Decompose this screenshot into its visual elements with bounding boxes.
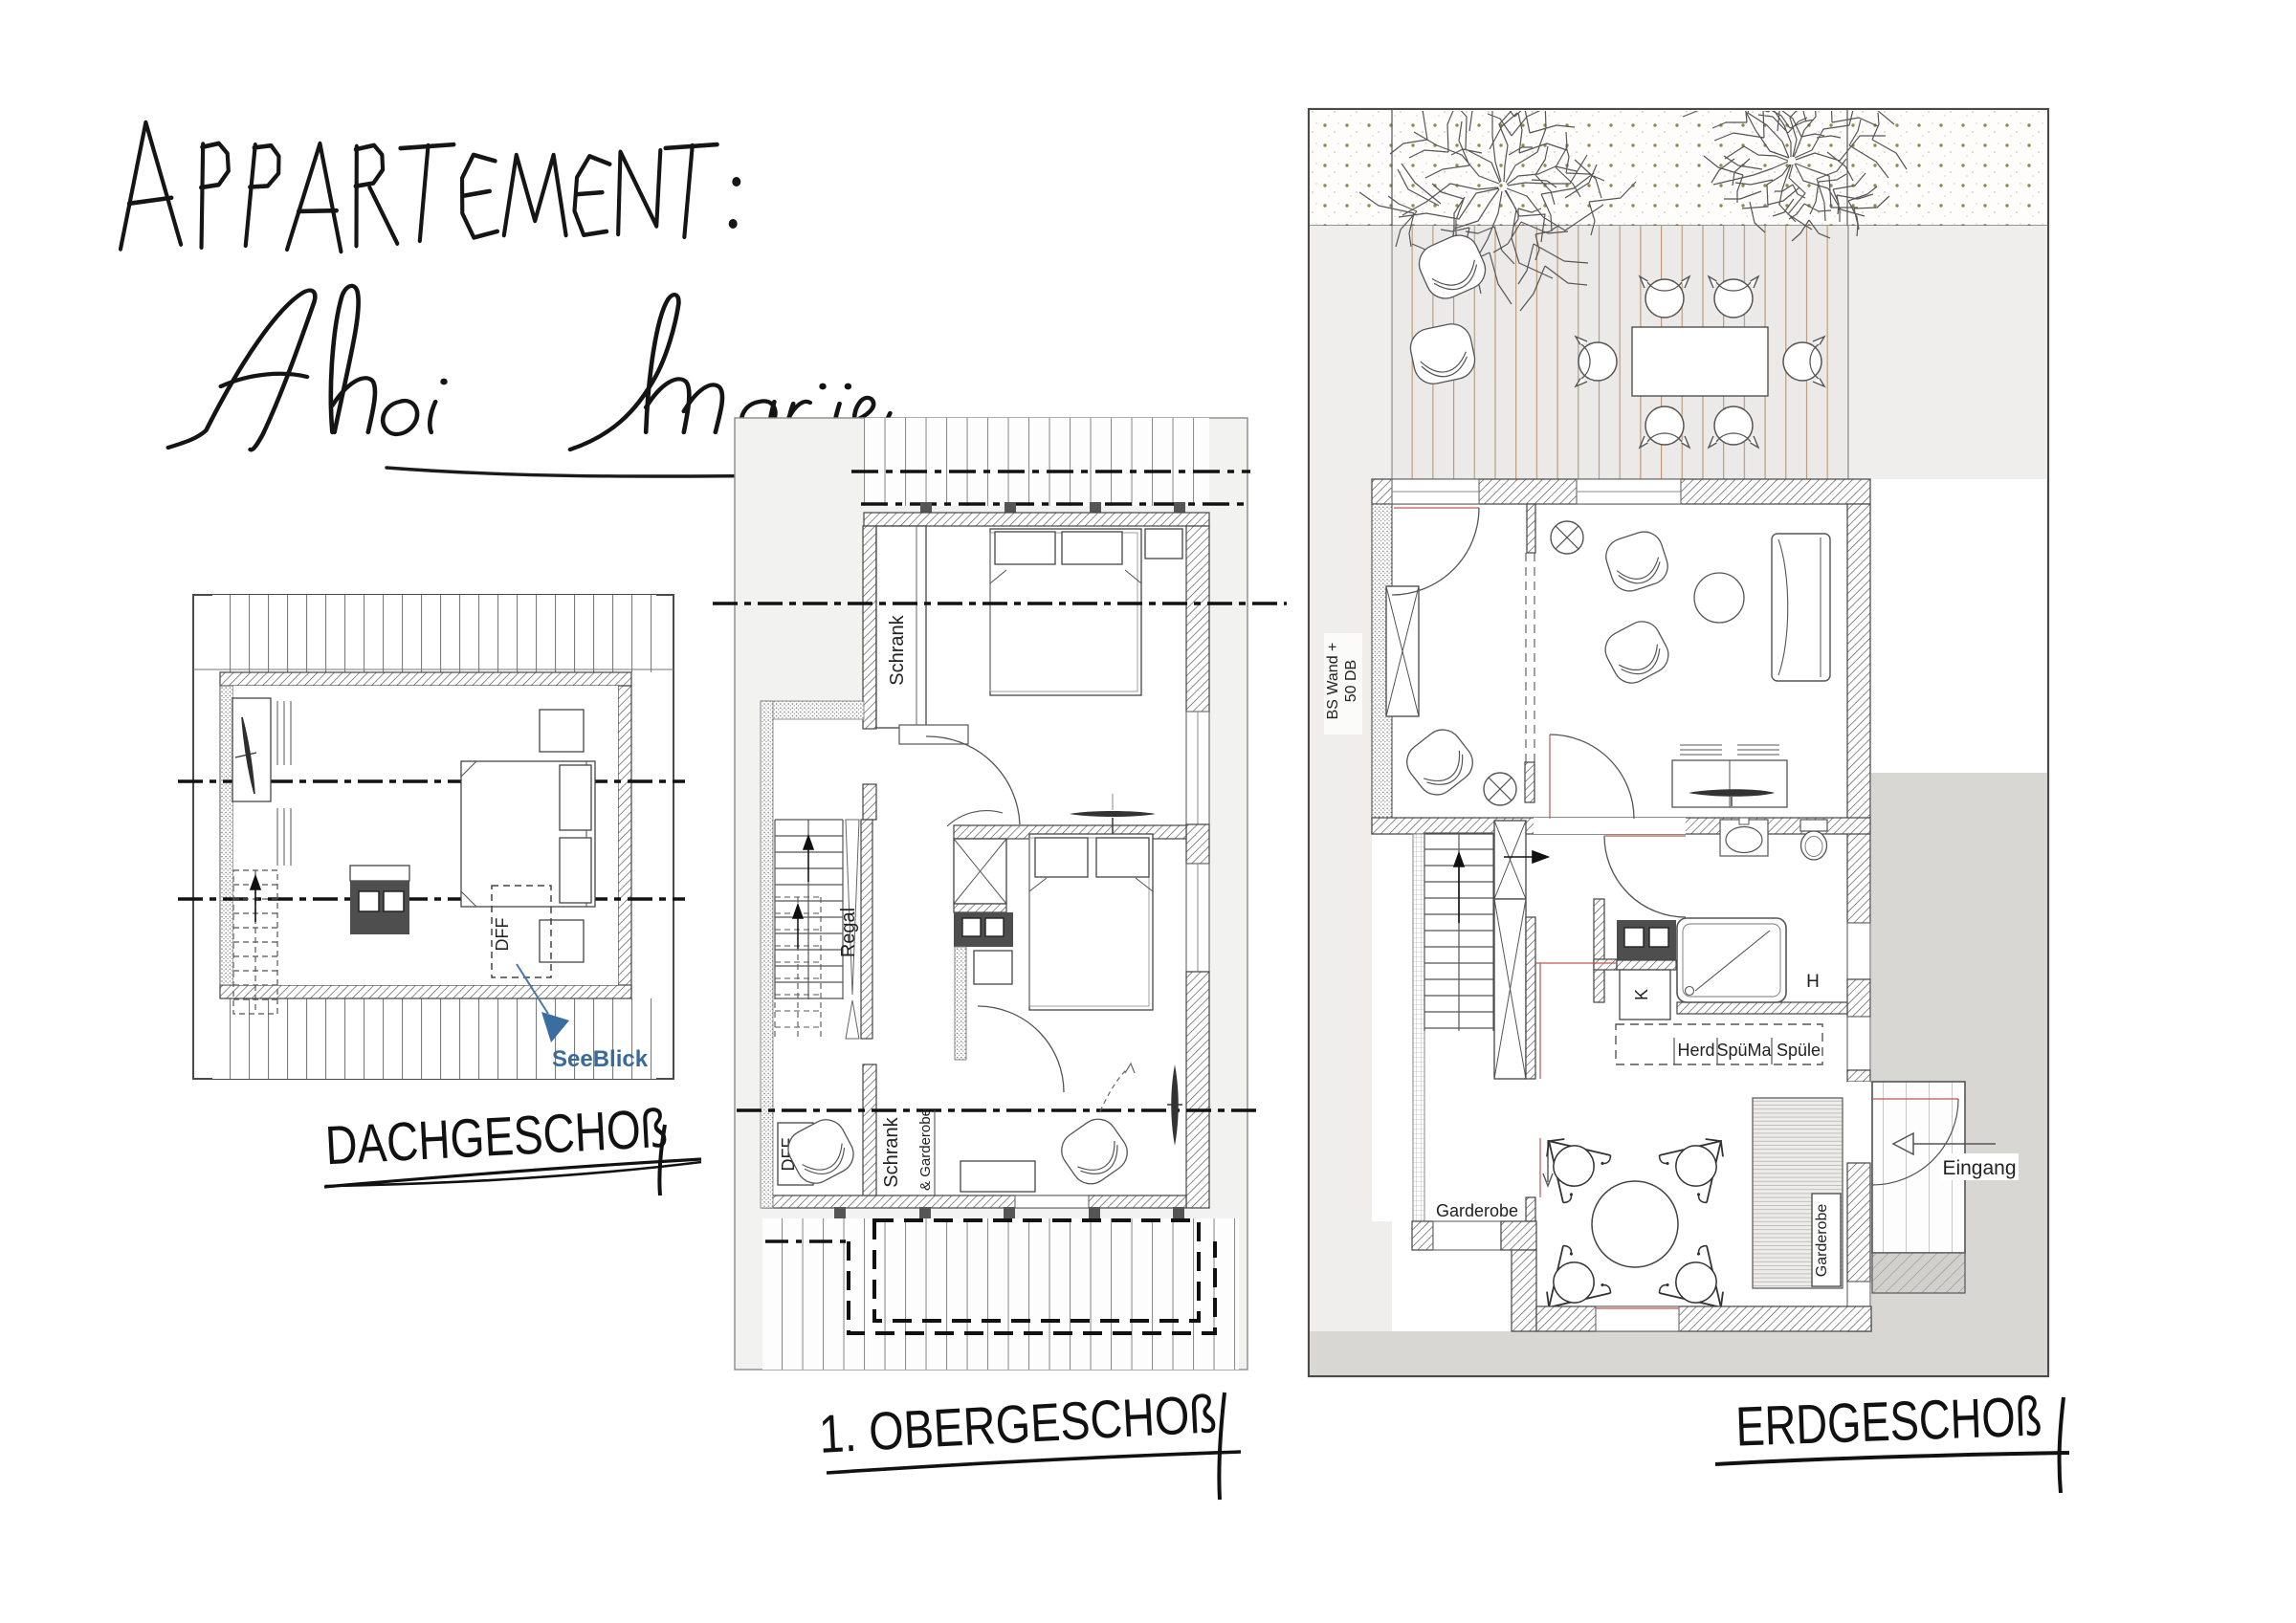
svg-text:Eingang: Eingang: [1942, 1157, 2016, 1179]
svg-text:ERDGESCHOß: ERDGESCHOß: [1734, 1385, 2042, 1458]
svg-text:& Garderobe: & Garderobe: [917, 1108, 934, 1191]
svg-text:SeeBlick: SeeBlick: [552, 1046, 649, 1072]
svg-text:Spüle: Spüle: [1777, 1041, 1821, 1060]
svg-text:Herd: Herd: [1677, 1041, 1714, 1060]
svg-text:Garderobe: Garderobe: [1814, 1204, 1830, 1278]
svg-text:DFF: DFF: [493, 918, 512, 952]
svg-text:Garderobe: Garderobe: [1436, 1201, 1518, 1220]
svg-text:BS Wand +: BS Wand +: [1325, 643, 1341, 720]
svg-text:K: K: [1632, 989, 1651, 1000]
svg-text:SpüMa: SpüMa: [1716, 1041, 1772, 1060]
svg-text:Schrank: Schrank: [887, 614, 908, 685]
svg-text:H: H: [1806, 972, 1820, 992]
svg-text:50 DB: 50 DB: [1343, 660, 1359, 702]
svg-text:Schrank: Schrank: [881, 1116, 902, 1187]
svg-text:Regal: Regal: [838, 908, 859, 957]
